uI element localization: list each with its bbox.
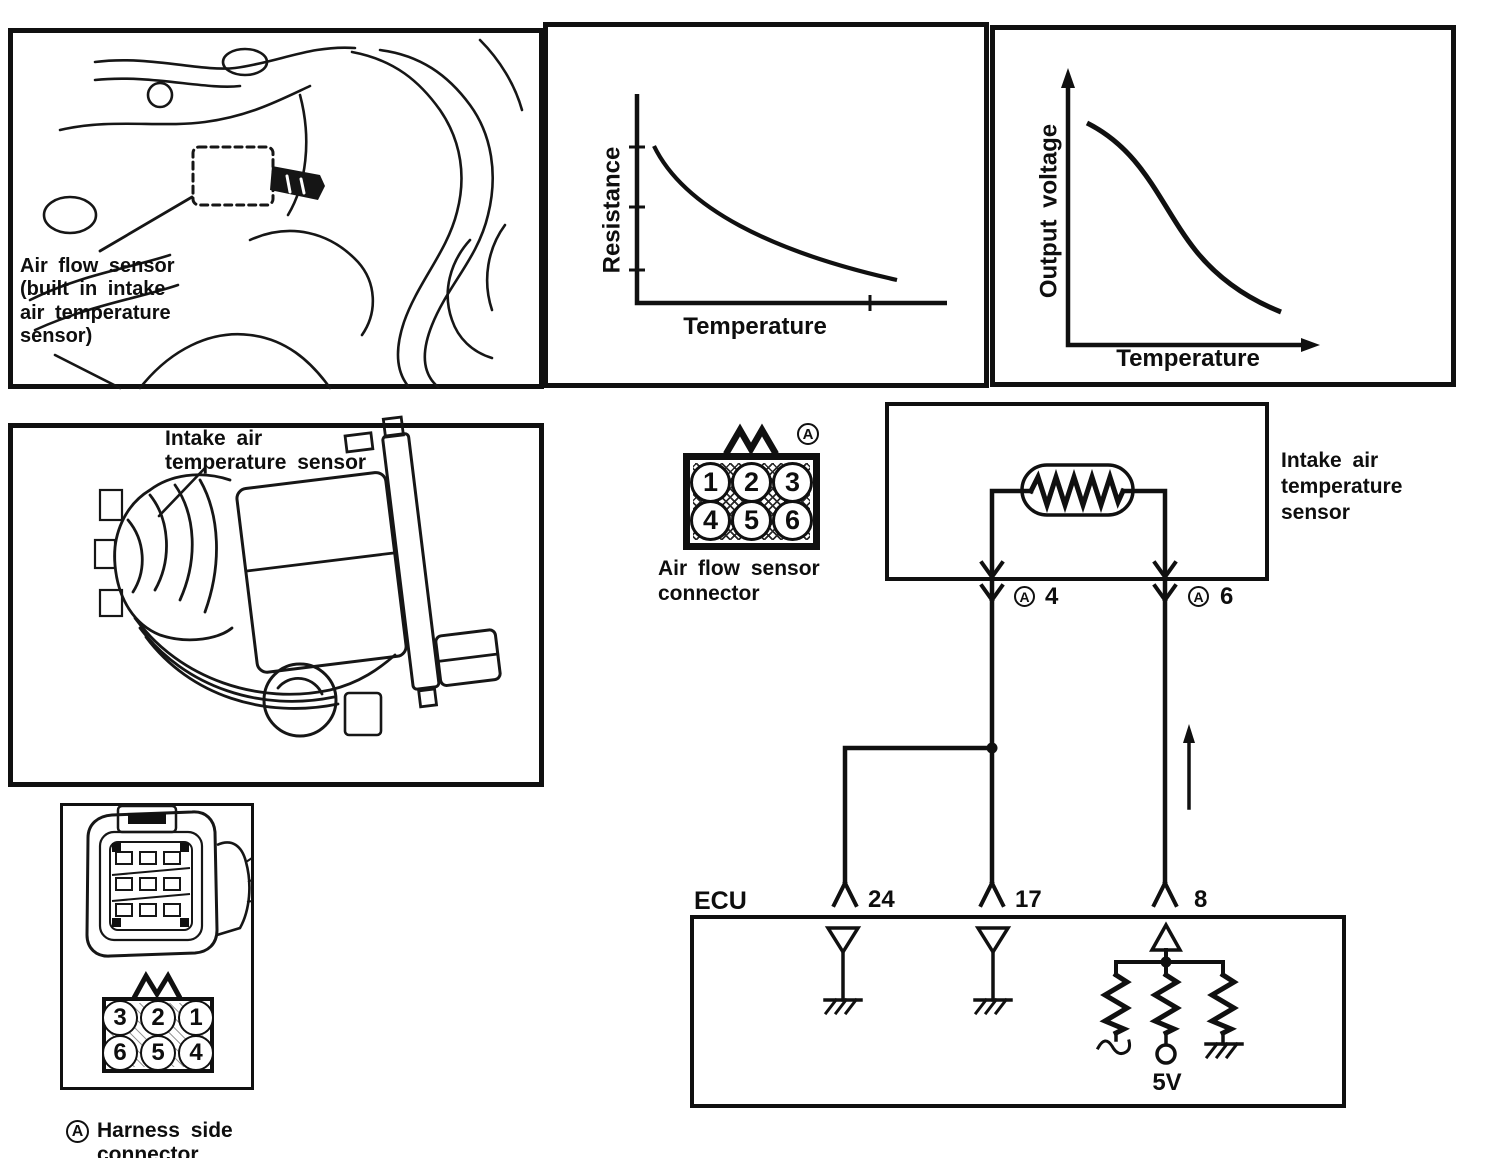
ecu-label: ECU bbox=[694, 888, 747, 914]
manual-page: Air flow sensor (built in intake air tem… bbox=[0, 0, 1504, 1158]
circuit-sensor-label-line3: sensor bbox=[1281, 502, 1350, 524]
engine-label-line2: (built in intake bbox=[20, 279, 166, 300]
airflow-pin-3: 3 bbox=[772, 462, 813, 503]
harness-connector-marker: A bbox=[66, 1120, 89, 1143]
engine-bay-illustration bbox=[30, 40, 522, 388]
circuit-sensor-label-line1: Intake air bbox=[1281, 450, 1378, 472]
voltage-x-axis-label: Temperature bbox=[1116, 346, 1260, 371]
circuit-sensor-label-line2: temperature bbox=[1281, 476, 1402, 498]
harness-pin-3: 3 bbox=[102, 1000, 138, 1036]
ecu-ground-24 bbox=[825, 928, 861, 1013]
engine-label-line3: air temperature bbox=[20, 303, 171, 324]
airflow-connector-notch-icon bbox=[726, 430, 776, 454]
airflow-pin-6: 6 bbox=[772, 500, 813, 541]
ecu-pin-17-label: 17 bbox=[1015, 887, 1042, 912]
harness-connector-illustration bbox=[87, 806, 252, 956]
ecu-pin-8-label: 8 bbox=[1194, 887, 1207, 912]
signal-direction-arrow-icon bbox=[1183, 724, 1195, 808]
junction-dot bbox=[987, 743, 998, 754]
circuit-wiring bbox=[825, 465, 1242, 1063]
resistance-graph bbox=[629, 94, 947, 311]
harness-pin-1: 1 bbox=[178, 1000, 214, 1036]
connector-a6-marker: A bbox=[1188, 586, 1209, 607]
wire-a6 bbox=[1123, 491, 1165, 883]
resistor-icon bbox=[1105, 975, 1127, 1033]
resistance-curve bbox=[654, 146, 897, 280]
resistance-axis-label: Resistance bbox=[599, 147, 624, 274]
harness-connector-notch-icon bbox=[134, 976, 180, 998]
supply-terminal-icon bbox=[1157, 1045, 1175, 1063]
airflow-pin-4: 4 bbox=[690, 500, 731, 541]
x-axis-arrowhead bbox=[1301, 338, 1320, 352]
resistor-icon bbox=[1212, 975, 1234, 1033]
wire-a4 bbox=[992, 491, 1031, 883]
harness-pin-2: 2 bbox=[140, 1000, 176, 1036]
ground-icon bbox=[1207, 1044, 1237, 1057]
airflow-connector-caption-line1: Air flow sensor bbox=[658, 558, 820, 580]
harness-pin-4: 4 bbox=[178, 1035, 214, 1071]
ecu-ground-17 bbox=[975, 928, 1011, 1013]
airflow-sensor-callout bbox=[100, 147, 325, 251]
ecu-pullup-network bbox=[1098, 925, 1242, 1063]
resistor-icon bbox=[1155, 975, 1177, 1033]
resistance-x-axis-label: Temperature bbox=[683, 314, 827, 339]
ecu-pin-24-label: 24 bbox=[868, 887, 895, 912]
airflow-connector-marker: A bbox=[797, 423, 819, 445]
continuation-squiggle-icon bbox=[1098, 1041, 1130, 1054]
airflow-pin-5: 5 bbox=[731, 500, 772, 541]
voltage-graph bbox=[1061, 68, 1320, 352]
y-axis-arrowhead bbox=[1061, 68, 1075, 88]
connector-a6-number: 6 bbox=[1220, 584, 1233, 609]
input-triangle-icon bbox=[1152, 925, 1180, 950]
airflow-connector-caption-line2: connector bbox=[658, 583, 760, 605]
voltage-curve bbox=[1087, 123, 1281, 312]
airflow-pin-2: 2 bbox=[731, 462, 772, 503]
engine-label-line1: Air flow sensor bbox=[20, 256, 174, 277]
airflow-pin-1: 1 bbox=[690, 462, 731, 503]
connector-a4-number: 4 bbox=[1045, 584, 1058, 609]
sensor-panel-label-line2: temperature sensor bbox=[165, 452, 366, 474]
harness-pin-5: 5 bbox=[140, 1035, 176, 1071]
supply-voltage-label: 5V bbox=[1152, 1070, 1181, 1095]
harness-caption-line1: Harness side bbox=[97, 1120, 233, 1142]
engine-label-line4: sensor) bbox=[20, 326, 92, 347]
connector-a4-marker: A bbox=[1014, 586, 1035, 607]
harness-caption-line2: connector bbox=[97, 1144, 199, 1158]
harness-pin-6: 6 bbox=[102, 1035, 138, 1071]
sensor-panel-label-line1: Intake air bbox=[165, 428, 262, 450]
voltage-axis-label: Output voltage bbox=[1036, 124, 1061, 298]
wire-branch-24 bbox=[845, 748, 992, 883]
